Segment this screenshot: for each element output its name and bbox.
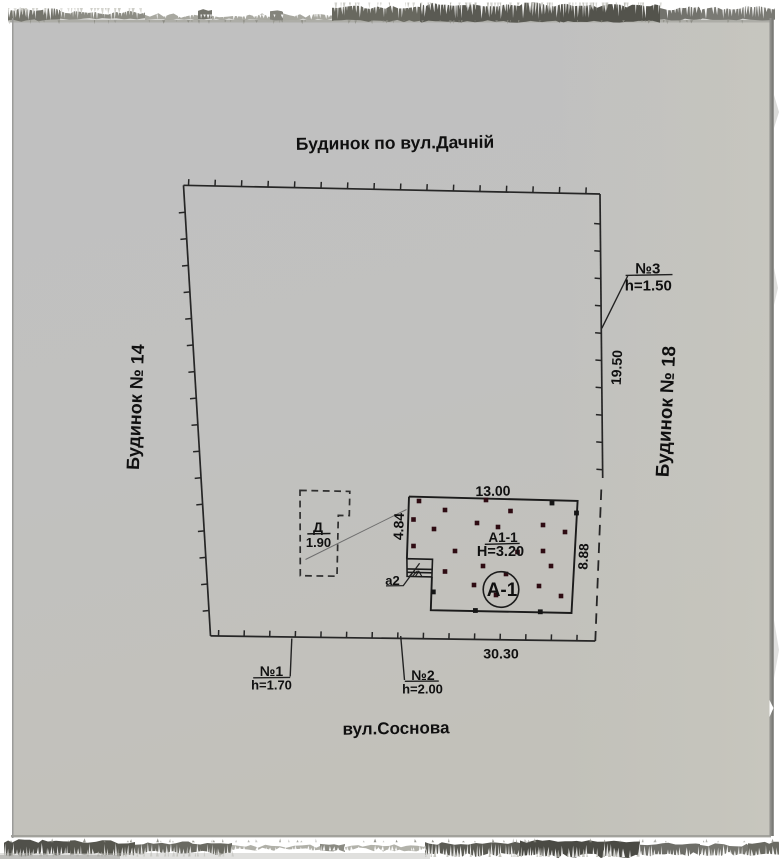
svg-text:13.00: 13.00: [475, 482, 511, 499]
svg-text:8.88: 8.88: [575, 543, 591, 570]
svg-text:19.50: 19.50: [608, 349, 626, 385]
svg-text:1.90: 1.90: [306, 535, 331, 550]
svg-text:Д: Д: [313, 519, 323, 535]
svg-text:Н=3.20: Н=3.20: [477, 544, 524, 560]
svg-text:Будинок по вул.Дачній: Будинок по вул.Дачній: [296, 132, 495, 154]
svg-text:А1-1: А1-1: [488, 530, 518, 545]
svg-text:h=2.00: h=2.00: [402, 682, 443, 697]
svg-text:h=1.70: h=1.70: [251, 677, 292, 692]
svg-text:№3: №3: [635, 261, 660, 278]
svg-text:4.84: 4.84: [390, 512, 407, 540]
svg-text:30.30: 30.30: [483, 647, 519, 663]
svg-text:h=1.50: h=1.50: [625, 277, 672, 294]
svg-text:А-1: А-1: [487, 580, 518, 601]
svg-text:вул.Соснова: вул.Соснова: [342, 718, 450, 738]
